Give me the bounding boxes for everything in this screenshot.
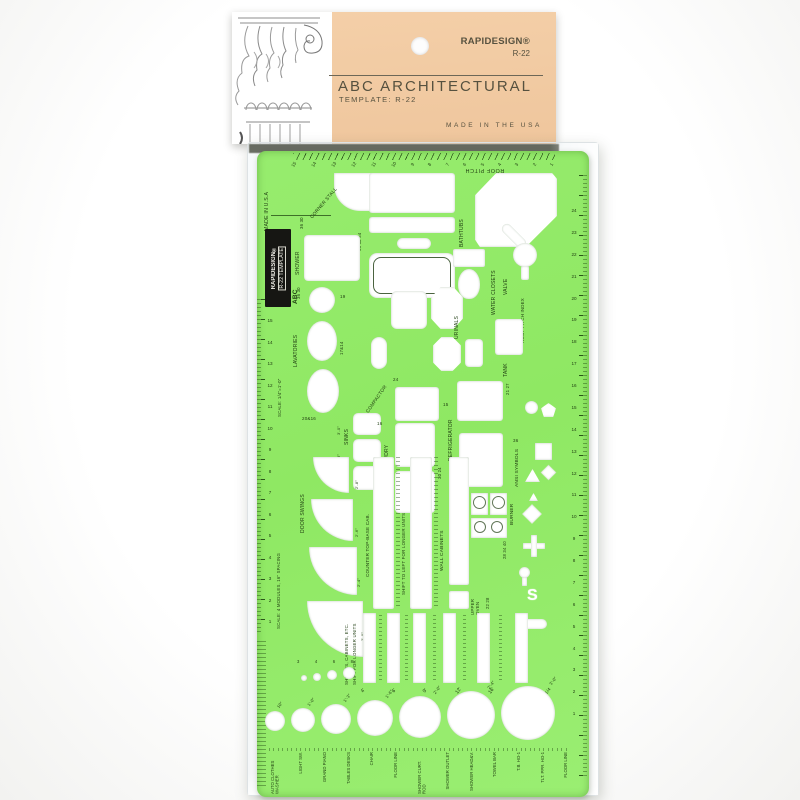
tick-label: 23: [571, 231, 576, 236]
tick-label: 2: [532, 162, 541, 169]
toilet-tank-cutout: [453, 249, 485, 267]
tick-label: 7: [444, 162, 453, 169]
circle-cutout-4: [357, 700, 393, 736]
right-ruler-major-ticks: [579, 175, 583, 779]
shift-left-label: SHIFT TO LEFT FOR LONGER UNITS: [402, 479, 407, 595]
tick-label: 4: [269, 556, 272, 561]
module-ticks-1: [396, 457, 400, 609]
compactor-size-15: 15: [443, 403, 448, 408]
tick-label: 14: [310, 161, 320, 170]
lavatory-size-19: 19: [340, 295, 345, 300]
small-circle-1: [301, 675, 307, 681]
shelf-slot-ticks-d: [463, 615, 466, 681]
scale-modules-label: SCALE: 4 MODULES, 16" SPACING: [277, 537, 282, 629]
bottom-item-labels: AUTO CLOTHES WASHERLIGHT SW.GRAND PIANOT…: [271, 752, 569, 794]
symbol-circle-cutout: [525, 401, 538, 414]
tick-label: CHAIR: [370, 752, 375, 765]
product-subtitle: Template: R-22: [339, 95, 417, 104]
corner-stall-cutout: [334, 173, 372, 211]
small-circle-4: [343, 667, 355, 679]
tick-label: 13: [571, 450, 576, 455]
tick-label: 16: [571, 384, 576, 389]
circle-size-7: 3'-0": [549, 676, 558, 686]
tick-label: 3: [269, 577, 272, 582]
small-circle-2: [313, 673, 321, 681]
tick-label: T.B. HO-1: [517, 752, 522, 771]
symbol-square-cutout: [535, 443, 552, 460]
burner-sizes: 28 34 40: [503, 529, 508, 559]
tick-label: 3: [514, 162, 523, 169]
right-ruler-ticks: [583, 175, 587, 779]
tick-label: 24: [571, 209, 576, 214]
upper-oven-cutout: [449, 591, 469, 609]
shelf-slot-1: [363, 613, 376, 683]
tick-label: 6: [333, 659, 335, 665]
shelf-slot-ticks-e: [499, 615, 502, 681]
tick-label: TLT. PPR. HO-1: [541, 752, 546, 783]
left-ruler-major-ticks: [261, 299, 265, 635]
compactor-label: COMPACTOR: [366, 385, 389, 415]
made-in-usa-text: MADE IN THE USA: [446, 122, 542, 129]
circle-cutout-5: [399, 696, 441, 738]
tick-label: 10: [390, 161, 400, 170]
tick-label: 2: [573, 690, 576, 695]
small-circle-sizes: 3468: [297, 659, 353, 665]
tick-label: 12: [350, 161, 360, 170]
urinal-cutout: [465, 339, 483, 367]
counter-label: COUNTER TOP-BASE CAB.: [365, 481, 370, 577]
tick-label: 13: [330, 161, 340, 170]
tick-label: 20: [571, 297, 576, 302]
tick-label: 11: [268, 405, 273, 410]
tick-label: GRAND PIANO: [323, 752, 328, 782]
tick-label: 3: [297, 659, 299, 665]
badge-brand: RAPIDESIGN®: [271, 246, 277, 289]
lavatory-oval2-cutout: [307, 369, 339, 413]
tick-label: 9: [573, 537, 576, 542]
refrigerator-cutout: [457, 381, 503, 421]
tick-label: 14: [267, 341, 272, 346]
tick-label: 15: [571, 406, 576, 411]
small-circle-3: [327, 670, 337, 680]
tick-label: 21: [571, 275, 576, 280]
door-swings-label: DOOR SWINGS: [301, 481, 307, 533]
tick-label: 1: [269, 620, 272, 625]
circle-cutout-7: [501, 686, 555, 740]
range1-cutout: [471, 493, 488, 515]
counter-slot-cutout: [373, 457, 394, 609]
circle-size-2: 1'-0": [307, 697, 316, 707]
shelf-slot-5: [477, 613, 490, 683]
tick-label: 15: [267, 319, 272, 324]
module-ticks-2: [434, 457, 438, 609]
tick-label: 8: [573, 559, 576, 564]
door-size-1: 2'-8": [355, 467, 359, 489]
tick-label: FLOOR LINE: [394, 752, 399, 778]
door-swing-arc-3: [309, 547, 357, 595]
product-photo: RAPIDESIGN® R-22 ABC Architectural Templ…: [0, 0, 800, 800]
tick-label: TABLES DESKS: [347, 752, 352, 784]
door-swing-arc-1: [313, 457, 349, 493]
symbol-s-cutout: S: [527, 587, 538, 605]
urinal-pill-cutout: [371, 337, 387, 369]
tick-label: 6: [573, 603, 576, 608]
tick-label: 1: [573, 712, 576, 717]
tick-label: SHOWER HEAD&V.: [470, 752, 475, 791]
tick-label: 5: [573, 625, 576, 630]
lavatory-circle-cutout: [309, 287, 335, 313]
module-ruler-ticks: [257, 641, 266, 789]
bathtub-rect-cutout: [369, 173, 455, 213]
shelf-slot-4: [443, 613, 456, 683]
wall-cabinet-slot-cutout: [449, 457, 469, 585]
lavatory-oval-cutout: [307, 321, 337, 361]
symbol-small-triangle-cutout: [529, 493, 538, 501]
lavatory-size-1714: 17&14: [340, 331, 345, 355]
tick-label: SHOWER CURT. ROD: [418, 752, 427, 794]
tick-label: 1: [549, 162, 558, 169]
tick-label: 12: [571, 472, 576, 477]
base-cabinet-slot-cutout: [410, 457, 432, 609]
drafting-template: MADE IN U.S.A 151413121110987654321 ROOF…: [257, 151, 589, 797]
ansi-symbols-label: ANSI SYMBOLS: [515, 447, 520, 487]
toilet-bowl-cutout: [458, 269, 480, 299]
tick-label: 13: [267, 362, 272, 367]
card-rule-line: [329, 75, 543, 76]
corner-stall-sizes: 36 30: [300, 209, 305, 229]
circle-cutout-6: [447, 691, 495, 739]
tick-label: 19: [571, 318, 576, 323]
bathtub-rect2-cutout: [369, 217, 455, 233]
symbol-keyhole-stem-cutout: [522, 577, 527, 586]
lavatories-label: LAVATORIES: [294, 317, 300, 367]
tick-label: 17: [571, 362, 576, 367]
tick-label: 6: [269, 513, 272, 518]
roof-pitch-index-label: ROOF PITCH INDEX: [521, 293, 535, 343]
sink-size-1: 3'-0": [337, 413, 341, 435]
tick-label: 4': [360, 687, 370, 696]
symbol-diamond-cutout: [541, 465, 557, 481]
tick-label: TOWEL BAR: [493, 752, 498, 777]
right-ruler-numbers: 242322212019181716151413121110987654321: [570, 209, 578, 717]
header-card: RAPIDESIGN® R-22 ABC Architectural Templ…: [232, 12, 556, 144]
upper-oven-label: UPPER OVEN: [471, 585, 484, 615]
model-text: R-22: [513, 49, 530, 58]
range3-cutout: [471, 518, 507, 538]
shelf-slot-6: [515, 613, 528, 683]
badge-model: R-22 TEMPLATE: [278, 246, 286, 290]
tick-label: 8: [351, 659, 353, 665]
valve-label: VALVE: [504, 269, 510, 295]
tick-label: 7: [573, 581, 576, 586]
tick-label: 9': [422, 687, 432, 696]
tank-cutout: [495, 319, 523, 355]
range2-cutout: [490, 493, 507, 515]
wash-dry-sizes-3024: 30 24: [438, 455, 443, 479]
circle-size-3: 1'-3": [343, 693, 352, 703]
circle-cutout-2: [291, 708, 315, 732]
tick-label: 10: [571, 515, 576, 520]
tick-label: 8: [269, 470, 272, 475]
plastic-bag: MADE IN U.S.A 151413121110987654321 ROOF…: [247, 142, 599, 796]
roof-pitch-tick-marks: [293, 153, 555, 160]
shelf-slot-ticks-a: [379, 615, 382, 681]
tick-label: FLOOR LINE: [564, 752, 569, 778]
tick-label: 18: [571, 340, 576, 345]
compactor-cutout: [395, 387, 439, 421]
valve-circle-cutout: [513, 243, 537, 267]
tick-label: LIGHT SW.: [299, 752, 304, 774]
tick-label: 4: [315, 659, 317, 665]
tick-label: 11: [370, 161, 380, 170]
tick-label: 12: [267, 384, 272, 389]
refrigerator-label: REFRIGERATOR: [449, 395, 455, 461]
shelf-slot-ticks-b: [405, 615, 408, 681]
left-ruler-numbers: 151413121110987654321: [266, 319, 274, 625]
urinals-label: URINALS: [455, 305, 461, 339]
bathtubs-label: BATHTUBS: [460, 191, 466, 247]
lavatory-rect-cutout: [391, 291, 427, 329]
tick-label: 10: [267, 427, 272, 432]
circle-cutout-1: [265, 711, 285, 731]
tick-label: 14: [571, 428, 576, 433]
circle-cutout-3: [321, 704, 351, 734]
water-closet-oct2-cutout: [433, 337, 461, 371]
symbol-plus-cutout: [523, 535, 545, 557]
tick-label: 9: [410, 162, 419, 169]
tick-label: 4: [573, 647, 576, 652]
tick-label: 11: [572, 493, 577, 498]
burner-label: BURNER: [510, 499, 515, 525]
door-size-3: 2'-4": [357, 565, 361, 587]
tick-label: 2: [269, 599, 272, 604]
ansi-size-36: 36: [513, 439, 518, 444]
shower-cutout: [304, 235, 360, 281]
upper-oven-sizes: 22 28: [486, 591, 491, 609]
shelf-slot-ticks-c: [433, 615, 436, 681]
wall-cabinets-label: WALL CABINETS: [440, 489, 445, 571]
shower-label: SHOWER: [296, 239, 302, 275]
tick-label: 8: [427, 162, 436, 169]
symbol-triangle-cutout: [525, 469, 540, 482]
template-made-in-label: MADE IN U.S.A: [265, 175, 271, 231]
tick-label: 9: [269, 448, 272, 453]
roof-pitch-label: ROOF PITCH: [465, 166, 504, 172]
soap-dish-slot-cutout: [397, 238, 431, 249]
tick-label: 3: [573, 668, 576, 673]
symbol-pentagon-cutout: [541, 403, 556, 417]
tick-label: 5: [269, 534, 272, 539]
bottom-tick-strip: [269, 748, 567, 751]
refrigerator-sizes: 21 27: [506, 373, 511, 395]
wash-dry-size-16: 16: [377, 422, 382, 427]
tick-label: AUTO CLOTHES WASHER: [271, 752, 280, 794]
valve-stem-cutout: [521, 266, 529, 280]
corinthian-column-engraving: [234, 12, 332, 144]
template-badge: RAPIDESIGN® R-22 TEMPLATE: [265, 229, 291, 307]
shower-sizes: 36 30: [297, 279, 302, 299]
sinks-label: SINKS: [345, 419, 351, 445]
print-line: [271, 215, 331, 216]
tick-label: SHOWER OUTLET: [446, 752, 451, 789]
water-closets-label: WATER CLOSETS: [492, 253, 498, 315]
product-title: ABC Architectural: [338, 78, 532, 95]
shelf-slot-2: [387, 613, 400, 683]
tick-label: 7: [269, 491, 272, 496]
shelf-slot-3: [413, 613, 426, 683]
lavatory-size-2016: 20&16: [302, 417, 316, 422]
tick-label: 15: [290, 161, 300, 170]
symbol-diamond2-cutout: [522, 504, 542, 524]
circle-size-1: 10": [276, 701, 284, 709]
compactor-size-24: 24: [393, 378, 398, 383]
punch-hole: [411, 37, 429, 55]
brand-text: RAPIDESIGN®: [461, 36, 530, 47]
tick-label: 22: [571, 253, 576, 258]
door-swing-arc-2: [311, 499, 353, 541]
roof-pitch-scale-numbers: 151413121110987654321: [293, 161, 555, 170]
scale-quarter-label: SCALE: 1/4"=1'-0": [278, 351, 283, 417]
door-size-2: 2'-6": [355, 515, 359, 537]
